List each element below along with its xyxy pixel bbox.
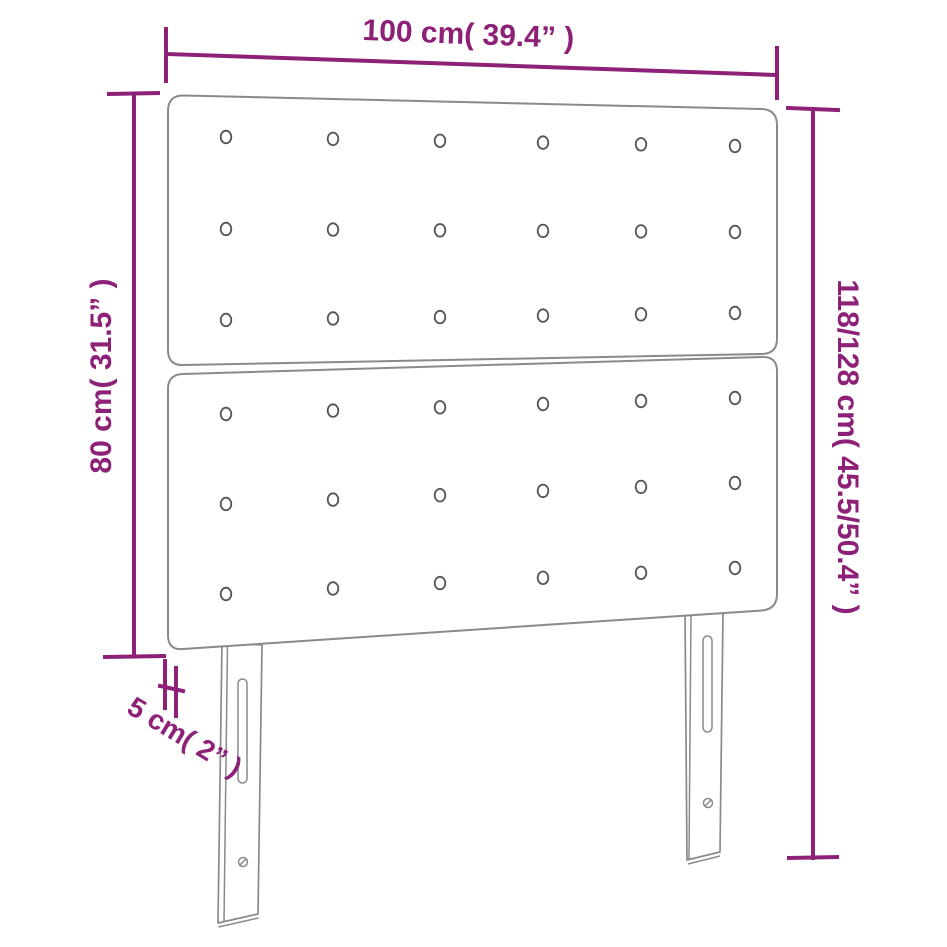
tufting-button xyxy=(435,135,446,148)
left-leg xyxy=(218,642,262,927)
diagram-canvas: 100 cm( 39.4” ) 80 cm( 31.5” ) 118/128 c… xyxy=(0,0,947,947)
total-height-top-tick xyxy=(788,108,838,110)
tufting-button xyxy=(636,308,647,321)
tufting-button xyxy=(221,314,232,327)
tufting-button xyxy=(538,136,549,149)
tufting-button xyxy=(435,311,446,324)
tufting-button xyxy=(636,567,647,580)
tufting-button xyxy=(730,392,741,405)
tufting-button xyxy=(221,408,232,421)
tufting-button xyxy=(435,401,446,414)
tufting-button xyxy=(730,307,741,320)
tufting-button xyxy=(221,223,232,236)
headboard-upper-panel xyxy=(168,95,777,365)
panel-height-dimension-label: 80 cm( 31.5” ) xyxy=(85,278,118,473)
tufting-button xyxy=(538,485,549,498)
tufting-button xyxy=(730,140,741,153)
tufting-button xyxy=(636,481,647,494)
tufting-button xyxy=(328,312,339,325)
tufting-button xyxy=(538,572,549,585)
right-leg xyxy=(685,610,723,864)
tufting-button xyxy=(328,133,339,146)
tufting-button xyxy=(328,223,339,236)
tufting-button xyxy=(435,224,446,237)
tufting-button xyxy=(730,226,741,239)
width-dimension: 100 cm( 39.4” ) xyxy=(166,14,777,98)
width-dimension-line xyxy=(166,54,777,75)
tufting-button xyxy=(730,477,741,490)
total-height-dimension-label: 118/128 cm( 45.5/50.4” ) xyxy=(831,279,864,614)
total-height-dimension: 118/128 cm( 45.5/50.4” ) xyxy=(788,108,864,858)
headboard-lower-panel xyxy=(168,357,777,649)
tufting-button xyxy=(328,493,339,506)
tufting-button xyxy=(221,131,232,144)
tufting-button xyxy=(538,398,549,411)
tufting-button xyxy=(221,588,232,601)
width-dimension-label: 100 cm( 39.4” ) xyxy=(362,14,575,55)
tufting-button xyxy=(538,309,549,322)
tufting-button xyxy=(435,489,446,502)
tufting-button xyxy=(636,395,647,408)
tufting-button xyxy=(221,498,232,511)
tufting-button xyxy=(730,562,741,575)
panel-height-bottom-tick xyxy=(105,656,164,657)
tufting-button xyxy=(328,582,339,595)
tufting-button xyxy=(636,225,647,238)
panel-height-dimension: 80 cm( 31.5” ) xyxy=(85,93,164,657)
tufting-button xyxy=(636,138,647,151)
panel-height-top-tick xyxy=(109,93,158,94)
tufting-button xyxy=(435,577,446,590)
tufting-button xyxy=(538,225,549,238)
tufting-button xyxy=(328,404,339,417)
headboard-dimension-diagram: 100 cm( 39.4” ) 80 cm( 31.5” ) 118/128 c… xyxy=(0,0,947,947)
total-height-bottom-tick xyxy=(789,857,837,858)
